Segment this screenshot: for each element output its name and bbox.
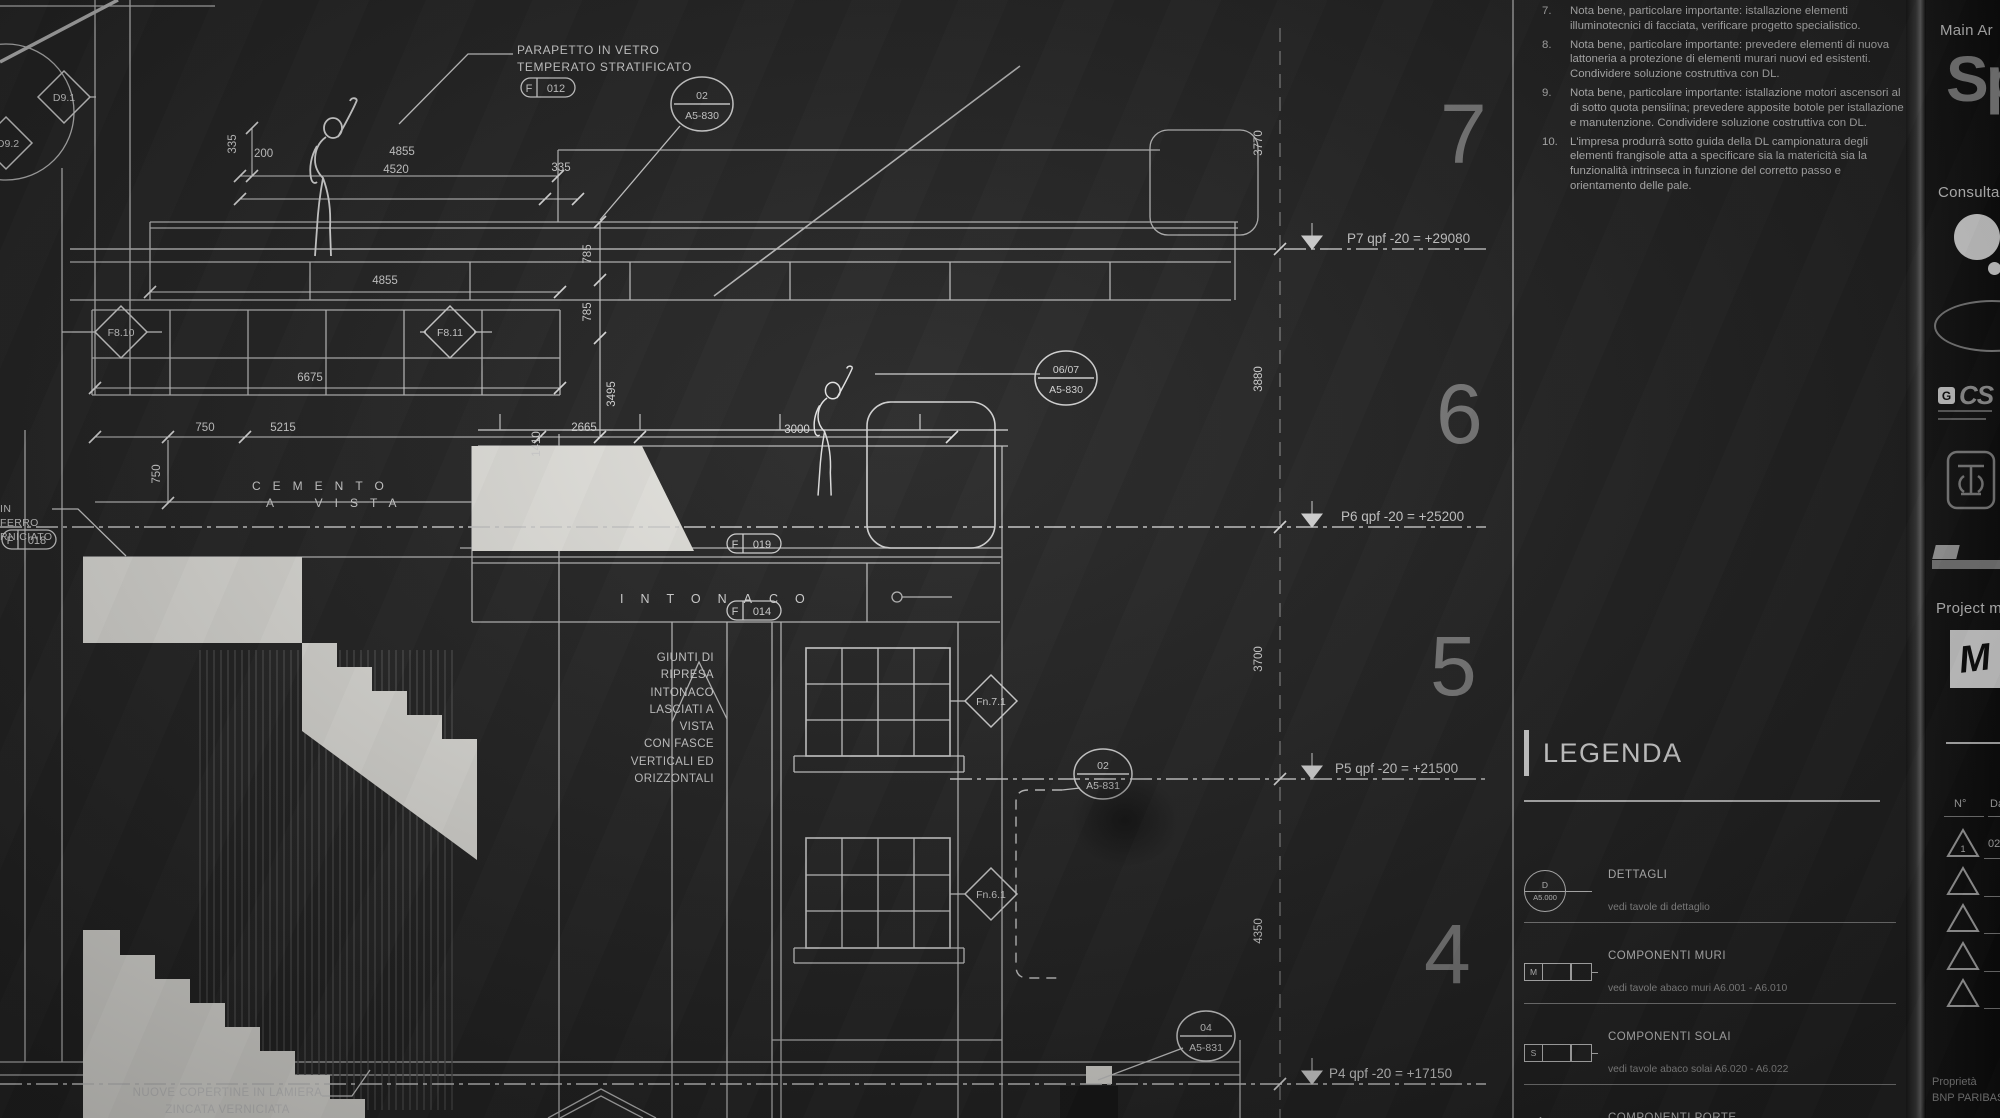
- note-text: Nota bene, particolare importante: preve…: [1570, 38, 1910, 82]
- legend-panel: LEGENDA D A5.000 DETTAGLI vedi tavole di…: [1524, 712, 1896, 1118]
- callout-circles: 02 A5-830 06/07 A5-830 02 A5-831 04 A5-8…: [671, 77, 1235, 1061]
- callout-bottom: A5-830: [685, 110, 719, 122]
- legend-title: LEGENDA: [1543, 738, 1683, 769]
- notes-panel: 7. Nota bene, particolare importante: is…: [1542, 4, 1910, 194]
- dim-text: 1410: [531, 431, 543, 457]
- level-label: P6 qpf -20 = +25200: [1341, 509, 1464, 524]
- giunti-label: GIUNTI DI RIPRESA INTONACO LASCIATI A VI…: [588, 650, 714, 788]
- dim-text: 6675: [297, 372, 323, 384]
- grid-number-6: 6: [1436, 366, 1485, 463]
- cs-logo: G CS: [1938, 380, 1993, 411]
- m-logo: M: [1950, 630, 2000, 688]
- legend-item-desc: vedi tavole di dettaglio: [1608, 902, 1710, 913]
- note-number: 10.: [1542, 135, 1570, 194]
- dim-text: 335: [227, 134, 239, 153]
- dim-text: 785: [582, 244, 594, 263]
- level-label: P4 qpf -20 = +17150: [1329, 1066, 1452, 1081]
- logo-fineprint: [1938, 410, 1992, 412]
- cs-logo-mark: G: [1938, 387, 1955, 404]
- level-label: P5 qpf -20 = +21500: [1335, 761, 1458, 776]
- main-architect-label: Main Ar: [1940, 22, 1993, 39]
- dimension-texts: 4855 4520 335 200 335 4855 785 785 3495 …: [151, 130, 1265, 944]
- symbol-code: A5.000: [1525, 892, 1565, 902]
- sp-logo: Sp: [1946, 42, 2000, 116]
- material-label: INTONACO: [620, 592, 822, 606]
- copertine-label: NUOVE COPERTINE IN LAMIERA ZINCATA VERNI…: [100, 1085, 355, 1118]
- dim-text: 4855: [389, 146, 415, 158]
- pill-letter: F: [526, 83, 533, 95]
- pill-letter: F: [732, 606, 739, 618]
- legend-item-solai: S COMPONENTI SOLAI vedi tavole abaco sol…: [1524, 1022, 1896, 1085]
- detail-circle-symbol: D A5.000: [1524, 870, 1566, 912]
- small-logo-mark: [1932, 545, 1959, 559]
- dim-text: 750: [195, 422, 214, 434]
- slab-tag-symbol: S: [1524, 1044, 1543, 1062]
- callout-top: 04: [1200, 1022, 1212, 1034]
- callout-top: 02: [696, 90, 708, 102]
- callout-top: 02: [1097, 760, 1109, 772]
- revision-date: 02.: [1988, 838, 2000, 850]
- diamond-label: F8.11: [437, 327, 463, 339]
- circle-logo-dot: [1988, 262, 2000, 275]
- legend-item-name: COMPONENTI PORTE: [1608, 1112, 1788, 1118]
- pill-number: 019: [753, 539, 771, 551]
- callout-bottom: A5-831: [1086, 780, 1120, 792]
- dim-text: 3700: [1253, 646, 1265, 672]
- diamond-label: Fn.7.1: [976, 696, 1006, 708]
- note-text: L'impresa produrrà sotto guida della DL …: [1570, 135, 1910, 194]
- consultants-label: Consulta: [1938, 184, 2000, 201]
- note-number: 8.: [1542, 38, 1570, 82]
- note-text: Nota bene, particolare importante: istal…: [1570, 4, 1910, 34]
- dim-text: 2665: [571, 422, 597, 434]
- dim-text: 200: [254, 148, 273, 160]
- legend-item-muri: M COMPONENTI MURI vedi tavole abaco muri…: [1524, 941, 1896, 1004]
- dim-text: 335: [551, 162, 570, 174]
- legend-item-desc: vedi tavole abaco solai A6.020 - A6.022: [1608, 1064, 1788, 1075]
- legend-item-name: DETTAGLI: [1608, 869, 1710, 881]
- callout-bottom: A5-831: [1189, 1042, 1223, 1054]
- level-label: P7 qpf -20 = +29080: [1347, 231, 1470, 246]
- pill-number: 014: [753, 606, 771, 618]
- dim-text: 3495: [606, 381, 618, 407]
- level-arrows: [1302, 223, 1322, 1084]
- rev-col-date: Da: [1990, 798, 2000, 810]
- grid-number-4: 4: [1424, 906, 1473, 1003]
- emblem-logo: [1946, 450, 1996, 510]
- note-number: 9.: [1542, 86, 1570, 130]
- legend-item-name: COMPONENTI SOLAI: [1608, 1031, 1788, 1043]
- legend-rule: [1524, 800, 1880, 802]
- diamond-label: Fn.6.1: [976, 889, 1006, 901]
- symbol-letter: D: [1525, 880, 1565, 892]
- wall-tag-symbol: M: [1524, 963, 1543, 981]
- parapetto-label: PARAPETTO IN VETRO TEMPERATO STRATIFICAT…: [517, 42, 692, 77]
- legend-item-porte: P COMPONENTI PORTE vedi tavole abaco sol…: [1524, 1103, 1896, 1118]
- dim-text: 3000: [784, 424, 810, 436]
- callout-bottom: A5-830: [1049, 384, 1083, 396]
- material-label: A VISTA: [266, 496, 408, 510]
- dim-text: 785: [582, 302, 594, 321]
- diamond-label: F8.10: [108, 327, 135, 339]
- dim-text: 4350: [1253, 918, 1265, 944]
- project-manager-label: Project m: [1936, 600, 2000, 617]
- dark-opening: [1060, 1086, 1118, 1118]
- pill-letter: F: [732, 539, 739, 551]
- sidebar-divider: [1946, 742, 2000, 744]
- title-block-sidebar: Main Ar Sp Consulta G CS Project m M N° …: [1926, 0, 2000, 1118]
- legend-item-desc: vedi tavole abaco muri A6.001 - A6.010: [1608, 983, 1787, 994]
- revision-triangles: 1: [1946, 826, 2000, 1026]
- sheet-edge: [1906, 0, 1926, 1118]
- legend-title-bar: [1524, 730, 1529, 776]
- cs-logo-text: CS: [1959, 380, 1993, 411]
- legend-item-dettagli: D A5.000 DETTAGLI vedi tavole di dettagl…: [1524, 860, 1896, 923]
- grid-number-7: 7: [1440, 86, 1489, 183]
- note-number: 7.: [1542, 4, 1570, 34]
- ferro-label: IN FERRO RNICIATO: [0, 502, 52, 545]
- dim-text: 750: [151, 464, 163, 483]
- rev-col-number: N°: [1954, 798, 1966, 810]
- dim-text: 5215: [270, 422, 296, 434]
- pill-number: 012: [547, 83, 565, 95]
- dim-text: 4520: [383, 164, 409, 176]
- callout-top: 06/07: [1053, 364, 1079, 376]
- proprieta-label: Proprietà: [1932, 1076, 1977, 1088]
- logo-fineprint: [1938, 418, 1986, 420]
- oval-logo: [1934, 300, 2000, 352]
- owner-name: BNP PARIBAS: [1932, 1092, 2000, 1104]
- diamond-label: D9.2: [0, 138, 19, 150]
- dim-text: 3770: [1253, 130, 1265, 156]
- small-logo-bar: [1932, 560, 2000, 569]
- material-label: CEMENTO: [252, 479, 396, 493]
- note-text: Nota bene, particolare importante: istal…: [1570, 86, 1910, 130]
- revision-number: 1: [1960, 844, 1965, 854]
- dim-text: 4855: [372, 275, 398, 287]
- blueprint-sheet: D9.1 D9.2 F8.10 F8.11 Fn.7.1 Fn.6.1 02 A…: [0, 0, 2000, 1118]
- grid-number-5: 5: [1430, 618, 1479, 715]
- legend-item-name: COMPONENTI MURI: [1608, 950, 1787, 962]
- dim-text: 3880: [1253, 366, 1265, 392]
- diamond-label: D9.1: [53, 92, 75, 104]
- circle-logo: [1954, 214, 2000, 260]
